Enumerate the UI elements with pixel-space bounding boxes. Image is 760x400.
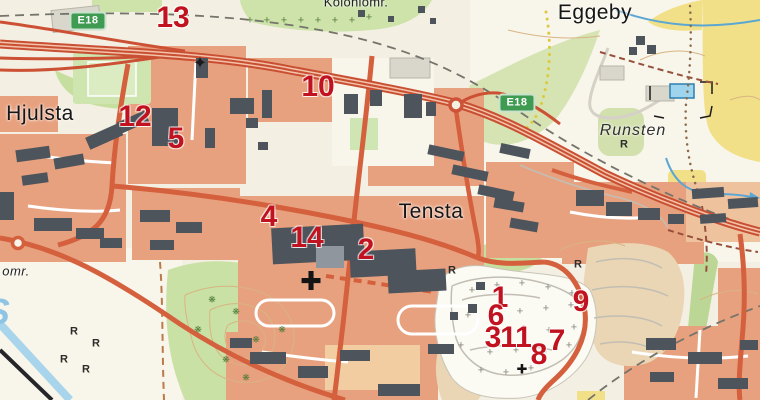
map-marker-8[interactable]: 8	[531, 340, 548, 370]
map-marker-13[interactable]: 13	[156, 3, 189, 33]
map-viewport[interactable]: +++++++++++++++++++++++++++++❋❋❋❋❋❋❋RRRR…	[0, 0, 760, 400]
map-marker-5[interactable]: 5	[168, 124, 185, 154]
map-marker-12[interactable]: 12	[118, 102, 151, 132]
map-marker-9[interactable]: 9	[573, 287, 590, 317]
map-marker-14[interactable]: 14	[290, 223, 323, 253]
map-canvas[interactable]	[0, 0, 760, 400]
map-marker-2[interactable]: 2	[358, 235, 375, 265]
map-marker-11[interactable]: 11	[500, 323, 532, 353]
map-marker-7[interactable]: 7	[549, 326, 566, 356]
roundabout	[450, 99, 462, 111]
map-marker-4[interactable]: 4	[261, 202, 278, 232]
pool	[670, 84, 694, 98]
map-marker-10[interactable]: 10	[301, 72, 334, 102]
